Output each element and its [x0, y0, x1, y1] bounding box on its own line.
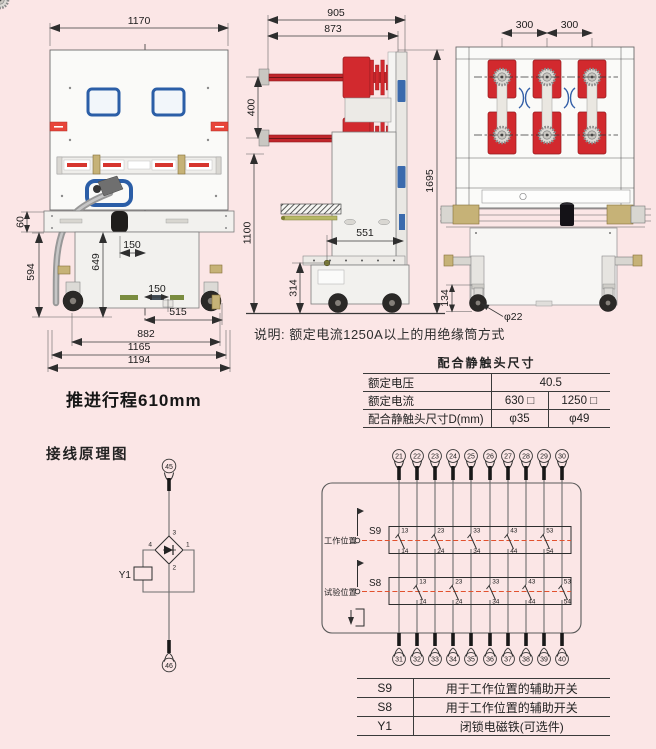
terminal-45: 45 — [165, 464, 173, 471]
svg-text:13: 13 — [419, 579, 427, 586]
rated-current-label: 额定电流 — [363, 392, 491, 410]
svg-text:515: 515 — [169, 306, 187, 318]
y1-circuit: 45 3 4 1 2 Y1 46 — [119, 459, 194, 672]
wiring-diagram-title: 接线原理图 — [46, 443, 129, 464]
side-view: 905 873 400 — [242, 7, 446, 314]
svg-text:33: 33 — [492, 579, 500, 586]
svg-text:23: 23 — [455, 579, 463, 586]
terminal-46: 46 — [165, 663, 173, 670]
svg-text:32: 32 — [413, 657, 421, 664]
svg-text:3: 3 — [173, 530, 177, 537]
svg-text:37: 37 — [504, 657, 512, 664]
svg-text:23: 23 — [431, 454, 439, 461]
svg-text:38: 38 — [522, 657, 530, 664]
legend-desc-s8: 用于工作位置的辅助开关 — [413, 698, 610, 717]
svg-text:1: 1 — [186, 542, 190, 549]
svg-text:300: 300 — [561, 19, 579, 31]
rated-current-1250: 1250 □ — [548, 392, 610, 410]
table-row: 额定电流 630 □ 1250 □ — [363, 392, 610, 410]
svg-text:314: 314 — [288, 279, 300, 297]
svg-text:54: 54 — [546, 548, 554, 555]
bottom-terminals: 31 32 33 34 35 36 37 38 39 40 — [393, 633, 569, 665]
svg-text:24: 24 — [437, 548, 445, 555]
rated-voltage-value: 40.5 — [491, 374, 610, 392]
rated-current-630: 630 □ — [491, 392, 548, 410]
contact-size-label: 配合静触头尺寸D(mm) — [363, 410, 491, 428]
svg-text:14: 14 — [401, 548, 409, 555]
svg-text:150: 150 — [148, 283, 166, 295]
front-view: 1170 60 594 649 — [15, 15, 235, 372]
svg-text:551: 551 — [356, 227, 374, 239]
contact-table: 额定电压 40.5 额定电流 630 □ 1250 □ 配合静触头尺寸D(mm)… — [363, 373, 610, 428]
contact-size-d35: φ35 — [491, 410, 548, 428]
legend-desc-s9: 用于工作位置的辅助开关 — [413, 679, 610, 698]
svg-text:44: 44 — [528, 599, 536, 606]
svg-text:24: 24 — [455, 599, 463, 606]
spec-note: 说明: 额定电流1250A以上的用绝缘筒方式 — [254, 324, 505, 343]
svg-text:54: 54 — [564, 599, 572, 606]
racking-direction-symbol — [351, 609, 364, 626]
svg-text:21: 21 — [395, 454, 403, 461]
svg-text:649: 649 — [90, 253, 102, 271]
table-row: S9 用于工作位置的辅助开关 — [357, 679, 610, 698]
svg-text:31: 31 — [395, 657, 403, 664]
table-row: Y1 闭锁电磁铁(可选件) — [357, 717, 610, 736]
svg-text:594: 594 — [25, 263, 37, 281]
svg-text:43: 43 — [528, 579, 536, 586]
svg-text:4: 4 — [148, 542, 152, 549]
table-row: 配合静触头尺寸D(mm) φ35 φ49 — [363, 410, 610, 428]
svg-text:14: 14 — [419, 599, 427, 606]
legend-code-y1: Y1 — [357, 717, 413, 736]
contact-table-title: 配合静触头尺寸 — [363, 354, 610, 371]
svg-text:300: 300 — [516, 19, 534, 31]
svg-text:44: 44 — [510, 548, 518, 555]
contact-size-d49: φ49 — [548, 410, 610, 428]
svg-text:工作位置: 工作位置 — [324, 536, 357, 546]
svg-text:S8: S8 — [369, 578, 382, 589]
svg-text:33: 33 — [431, 657, 439, 664]
svg-text:28: 28 — [522, 454, 530, 461]
svg-text:882: 882 — [137, 328, 155, 340]
svg-text:S9: S9 — [369, 526, 382, 537]
drawing-page: 1170 60 594 649 — [0, 0, 656, 749]
svg-text:试验位置: 试验位置 — [324, 587, 357, 597]
legend-code-s9: S9 — [357, 679, 413, 698]
svg-text:30: 30 — [558, 454, 566, 461]
svg-text:φ22: φ22 — [504, 311, 523, 323]
svg-text:13: 13 — [401, 528, 409, 535]
svg-text:2: 2 — [173, 565, 177, 572]
svg-text:134: 134 — [439, 289, 451, 307]
svg-text:34: 34 — [449, 657, 457, 664]
svg-text:29: 29 — [540, 454, 548, 461]
dim-label: 1170 — [128, 15, 151, 27]
svg-text:24: 24 — [449, 454, 457, 461]
svg-text:43: 43 — [510, 528, 518, 535]
svg-text:53: 53 — [564, 579, 572, 586]
svg-text:1695: 1695 — [424, 169, 436, 193]
svg-text:22: 22 — [413, 454, 421, 461]
table-row: S8 用于工作位置的辅助开关 — [357, 698, 610, 717]
top-terminals: 21 22 23 24 25 26 27 28 29 30 — [393, 450, 569, 480]
svg-text:34: 34 — [492, 599, 500, 606]
svg-text:40: 40 — [558, 657, 566, 664]
svg-text:36: 36 — [486, 657, 494, 664]
svg-text:873: 873 — [324, 23, 342, 35]
svg-text:39: 39 — [540, 657, 548, 664]
svg-text:1100: 1100 — [242, 222, 254, 245]
legend-code-s8: S8 — [357, 698, 413, 717]
svg-text:23: 23 — [437, 528, 445, 535]
svg-text:1194: 1194 — [128, 354, 151, 366]
table-row: 额定电压 40.5 — [363, 374, 610, 392]
svg-text:26: 26 — [486, 454, 494, 461]
svg-text:33: 33 — [473, 528, 481, 535]
rated-voltage-label: 额定电压 — [363, 374, 491, 392]
svg-text:400: 400 — [246, 99, 258, 117]
travel-text: 推进行程610mm — [66, 386, 202, 411]
svg-text:25: 25 — [467, 454, 475, 461]
svg-text:53: 53 — [546, 528, 554, 535]
coil-label: Y1 — [119, 570, 132, 581]
upper-pole-arm — [259, 57, 402, 98]
legend-table: S9 用于工作位置的辅助开关 S8 用于工作位置的辅助开关 Y1 闭锁电磁铁(可… — [357, 678, 610, 736]
svg-text:905: 905 — [327, 7, 345, 19]
svg-text:60: 60 — [15, 216, 27, 228]
svg-text:35: 35 — [467, 657, 475, 664]
work-position-switch: S9 工作位置 — [324, 508, 382, 546]
svg-text:1165: 1165 — [128, 341, 151, 353]
relay-diagram: 21 22 23 24 25 26 27 28 29 30 1314 2324 … — [322, 450, 581, 666]
svg-text:150: 150 — [123, 239, 141, 251]
svg-text:27: 27 — [504, 454, 512, 461]
svg-text:34: 34 — [473, 548, 481, 555]
legend-desc-y1: 闭锁电磁铁(可选件) — [413, 717, 610, 736]
